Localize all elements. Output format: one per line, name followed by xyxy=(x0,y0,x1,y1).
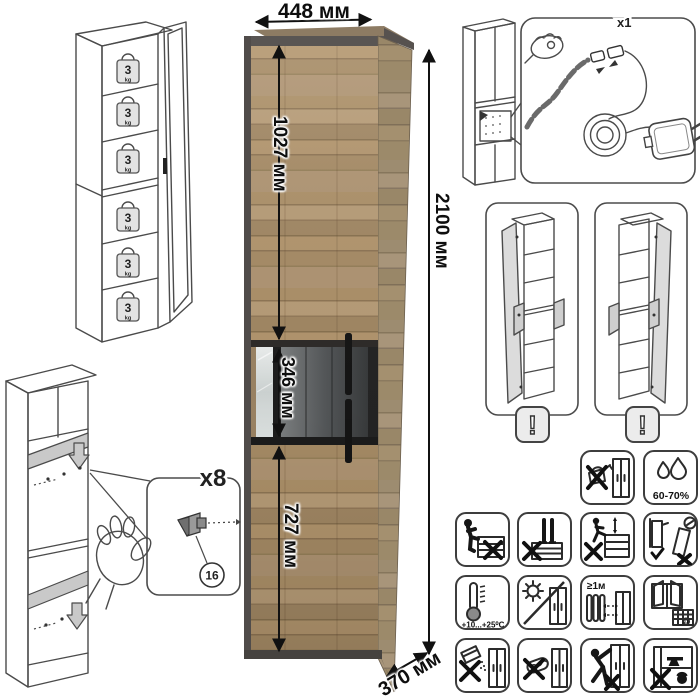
ventilation-icon: 21 xyxy=(646,578,696,628)
temperature-icon: +10...+25⁰C xyxy=(458,578,508,628)
load-unit: kg xyxy=(125,121,131,127)
shelf-assembly-figure: x8 16 xyxy=(0,355,260,700)
led-kit-figure: x1 xyxy=(455,5,700,190)
load-value: 3 xyxy=(125,301,132,315)
no-liquids-icon xyxy=(583,453,633,503)
heat-distance-label: ≥1м xyxy=(587,581,605,592)
load-value: 3 xyxy=(125,257,132,271)
upper-section-dimension-label: 1027 мм xyxy=(268,116,290,192)
no-abrasive-icon xyxy=(458,641,508,691)
pictogram-no-climbing xyxy=(580,512,635,567)
load-unit: kg xyxy=(125,226,131,232)
no-scouring-icon xyxy=(520,641,570,691)
no-standing-icon xyxy=(520,515,570,565)
anchor-to-wall-icon xyxy=(646,515,696,565)
pictogram-heat-source-distance: ≥1м xyxy=(580,575,635,630)
load-unit: kg xyxy=(125,78,131,84)
load-value: 3 xyxy=(125,63,132,77)
product-spec-sheet: 3kg 3kg 3kg 3kg 3kg 3kg xyxy=(0,0,700,700)
load-value: 3 xyxy=(125,211,132,225)
product-photo xyxy=(244,0,464,700)
humidity-icon: 60-70% xyxy=(646,453,696,503)
pictogram-temperature-range: +10...+25⁰C xyxy=(455,575,510,630)
warning-badge: ! xyxy=(626,407,659,442)
led-kit-count-label: x1 xyxy=(617,15,631,30)
pictogram-anchor-to-wall xyxy=(643,512,698,567)
no-sitting-icon xyxy=(458,515,508,565)
warning-exclamation: ! xyxy=(638,410,647,440)
hand-icon xyxy=(86,515,155,609)
warning-exclamation: ! xyxy=(528,410,537,440)
fastener-callout-bubble xyxy=(147,478,240,595)
temperature-range-label: +10...+25⁰C xyxy=(461,620,504,628)
pictogram-no-direct-sunlight xyxy=(517,575,572,630)
no-dragging-icon xyxy=(583,641,633,691)
shelf-pin-part-number: 16 xyxy=(205,569,219,583)
pictogram-no-heavy-items xyxy=(643,638,698,693)
lower-section-dimension-label: 727 мм xyxy=(279,503,301,568)
shelf-load-figure: 3kg 3kg 3kg 3kg 3kg 3kg xyxy=(0,0,240,355)
no-sunlight-icon xyxy=(520,578,570,628)
pictogram-no-scouring xyxy=(517,638,572,693)
heat-distance-icon: ≥1м xyxy=(583,578,633,628)
load-value: 3 xyxy=(125,106,132,120)
insert-arrow-icon xyxy=(67,603,87,629)
load-unit: kg xyxy=(125,316,131,322)
door-variants-figure: ! ! xyxy=(480,195,695,450)
no-heavy-items-icon xyxy=(646,641,696,691)
pictogram-no-abrasive-cleaners xyxy=(455,638,510,693)
shelf-pin-count-label: x8 xyxy=(200,465,227,492)
load-unit: kg xyxy=(125,272,131,278)
humidity-range-label: 60-70% xyxy=(652,490,689,502)
warning-badge: ! xyxy=(516,407,549,442)
no-climbing-icon xyxy=(583,515,633,565)
calendar-day-label: 21 xyxy=(683,619,689,624)
display-section-dimension-label: 346 мм xyxy=(277,357,298,419)
height-dimension-label: 2100 мм xyxy=(430,193,452,269)
load-unit: kg xyxy=(125,168,131,174)
load-value: 3 xyxy=(125,153,132,167)
pictogram-no-standing xyxy=(517,512,572,567)
width-dimension-label: 448 мм xyxy=(258,0,370,24)
cabinet-side xyxy=(378,36,412,692)
pictogram-no-sitting xyxy=(455,512,510,567)
pictogram-ventilation: 21 xyxy=(643,575,698,630)
pictogram-no-dragging xyxy=(580,638,635,693)
pictogram-humidity: 60-70% xyxy=(643,450,698,505)
shelf-load-badges: 3kg 3kg 3kg 3kg 3kg 3kg xyxy=(117,54,139,322)
pictogram-no-liquids xyxy=(580,450,635,505)
